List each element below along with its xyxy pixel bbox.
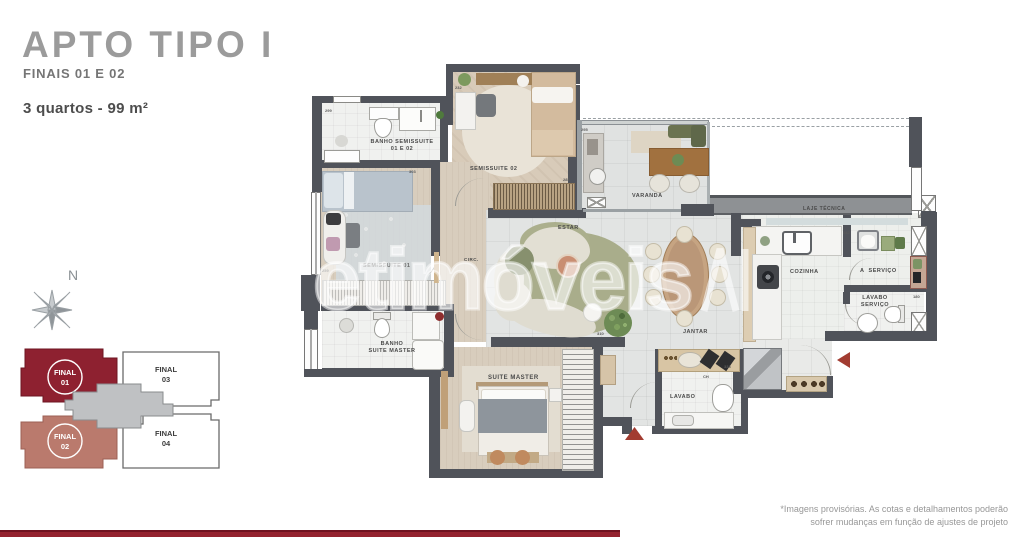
svg-text:03: 03 [162,375,170,384]
svg-text:FINAL: FINAL [54,368,76,377]
svg-text:FINAL: FINAL [54,432,76,441]
svg-text:N: N [68,267,78,283]
svg-text:04: 04 [162,439,171,448]
svg-text:FINAL: FINAL [155,429,177,438]
svg-text:01: 01 [61,378,69,387]
svg-text:FINAL: FINAL [155,365,177,374]
svg-text:02: 02 [61,442,69,451]
